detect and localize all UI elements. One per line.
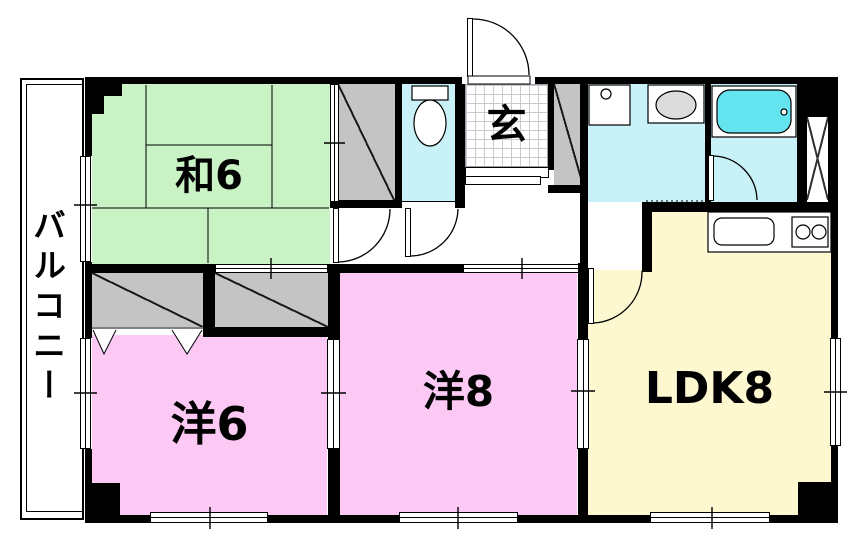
- toilet-door-leaf: [405, 208, 411, 257]
- wall: [578, 449, 588, 515]
- window-washitsu-balcony: [80, 156, 91, 262]
- wall: [85, 264, 215, 273]
- entrance-door-leaf: [467, 18, 473, 77]
- ldk-door-leaf: [588, 268, 594, 324]
- corner-pillar: [88, 483, 120, 522]
- window-ldk-east: [830, 338, 841, 446]
- wall: [267, 515, 400, 523]
- label-ldk: LDK8: [588, 360, 831, 418]
- genkan-step-2: [465, 176, 541, 185]
- toilet-door-arc: [411, 209, 458, 256]
- wall: [330, 200, 397, 208]
- fusuma-oshiire: [215, 264, 328, 273]
- wall: [517, 515, 651, 523]
- label-western8: 洋8: [340, 362, 577, 422]
- opening-western6-western8: [327, 339, 340, 449]
- wall: [85, 262, 92, 338]
- wall: [828, 83, 838, 202]
- closet-door-arc: [339, 209, 390, 262]
- wall: [642, 202, 652, 272]
- closet-oshiire: [215, 273, 328, 327]
- corner-pillar: [798, 482, 838, 522]
- room-washroom: [588, 84, 705, 202]
- window-western6-balcony: [80, 338, 91, 449]
- wall: [455, 84, 465, 208]
- wall: [328, 449, 340, 515]
- label-western6: 洋6: [92, 392, 327, 456]
- window-western8-south: [399, 512, 518, 523]
- wall: [328, 273, 340, 339]
- label-genkan: 玄: [465, 95, 548, 155]
- fusuma-washitsu-east: [330, 84, 339, 202]
- sliding-door-western8: [463, 264, 579, 273]
- wall: [203, 268, 215, 337]
- closet-left: [92, 273, 203, 327]
- wall: [580, 84, 588, 274]
- wall: [215, 327, 338, 337]
- closet-door-leaf: [333, 208, 339, 263]
- wall: [328, 264, 463, 273]
- floorplan-canvas: 和6 玄 洋6 洋8 LDK8 バルコニー: [0, 0, 861, 543]
- pipe-shaft: [807, 117, 828, 200]
- closet-hall: [338, 84, 395, 202]
- window-western6-south: [150, 512, 268, 523]
- label-washitsu: 和6: [146, 145, 272, 207]
- wall: [797, 83, 807, 202]
- wall: [578, 263, 588, 339]
- window-ldk-south: [650, 512, 770, 523]
- label-balcony: バルコニー: [24, 128, 70, 488]
- room-toilet: [402, 84, 455, 202]
- wall: [85, 77, 462, 84]
- entrance-threshold: [468, 76, 530, 84]
- hall-vestibule: [588, 202, 642, 270]
- wall: [642, 202, 838, 212]
- entrance-door-arc: [473, 19, 529, 75]
- bath-door-leaf: [708, 155, 714, 201]
- corner-pillar: [85, 77, 104, 114]
- wall: [535, 77, 838, 84]
- wall: [548, 84, 554, 170]
- room-bathroom: [711, 84, 797, 202]
- closet-shoe: [554, 84, 583, 185]
- wall: [395, 84, 402, 208]
